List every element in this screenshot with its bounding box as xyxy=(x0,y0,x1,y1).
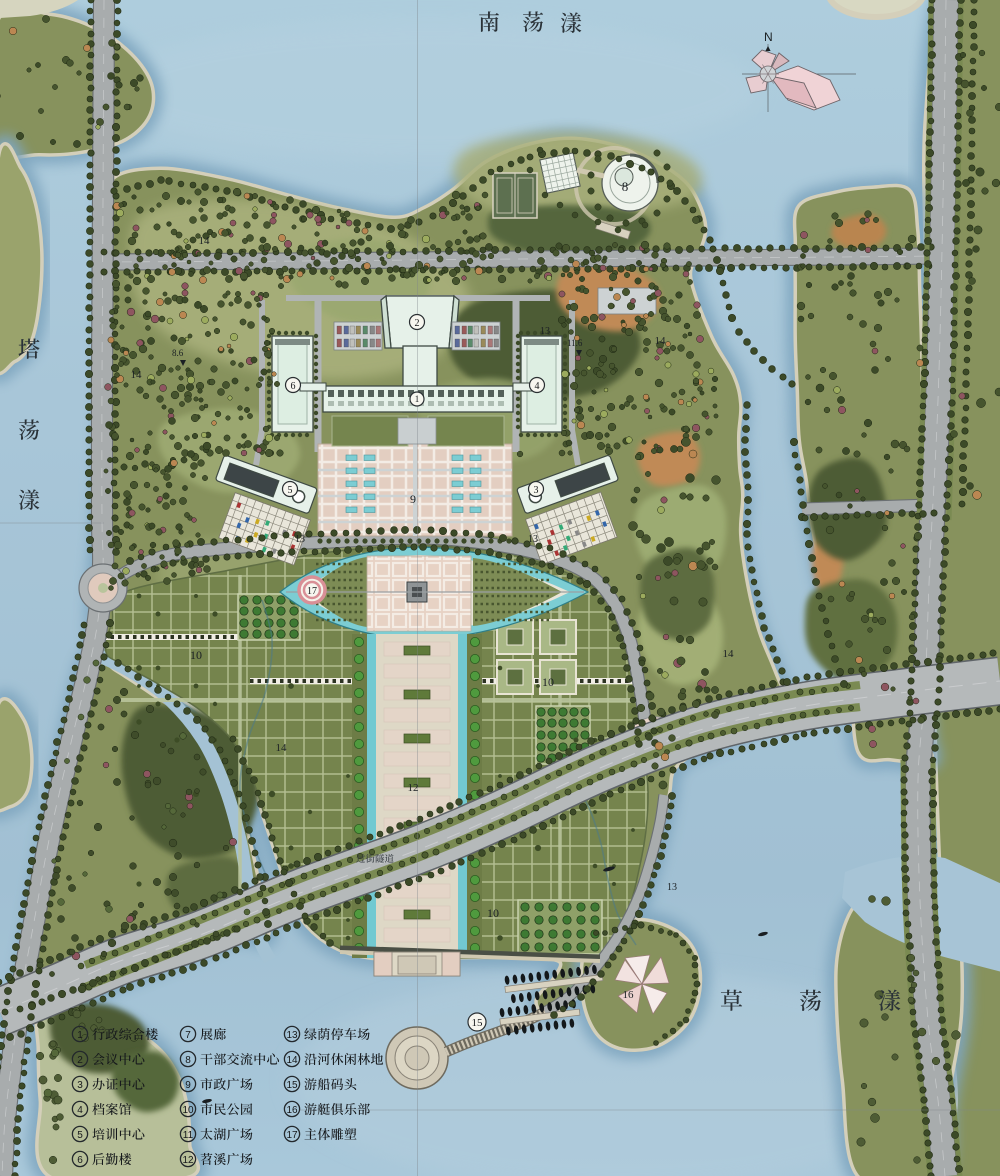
svg-text:13: 13 xyxy=(540,326,550,337)
svg-text:14: 14 xyxy=(655,335,667,347)
svg-text:1: 1 xyxy=(415,394,420,404)
svg-text:8: 8 xyxy=(185,1055,191,1066)
svg-text:9: 9 xyxy=(185,1080,191,1091)
svg-text:3: 3 xyxy=(534,485,539,496)
svg-text:2: 2 xyxy=(77,1055,83,1066)
svg-text:16: 16 xyxy=(623,989,635,1001)
svg-text:16: 16 xyxy=(286,1105,298,1116)
svg-text:13: 13 xyxy=(667,882,677,893)
svg-text:N: N xyxy=(764,30,773,44)
svg-text:4: 4 xyxy=(77,1105,83,1116)
svg-text:2: 2 xyxy=(415,318,420,329)
svg-text:14: 14 xyxy=(723,648,735,660)
svg-text:4: 4 xyxy=(535,381,540,392)
svg-text:10: 10 xyxy=(542,675,554,689)
svg-text:14: 14 xyxy=(276,742,288,754)
svg-text:6: 6 xyxy=(77,1155,83,1166)
svg-text:5: 5 xyxy=(77,1130,83,1141)
svg-text:11.6: 11.6 xyxy=(567,338,583,348)
svg-text:6: 6 xyxy=(291,381,296,392)
svg-text:10: 10 xyxy=(487,906,499,920)
svg-text:3: 3 xyxy=(77,1080,83,1091)
svg-text:12: 12 xyxy=(182,1155,194,1166)
svg-text:1: 1 xyxy=(77,1030,83,1041)
svg-text:14: 14 xyxy=(131,369,143,381)
svg-text:10: 10 xyxy=(182,1105,194,1116)
svg-text:14: 14 xyxy=(199,235,211,247)
svg-text:17: 17 xyxy=(307,586,317,597)
svg-text:15: 15 xyxy=(472,1017,484,1029)
svg-text:7: 7 xyxy=(185,1030,191,1041)
svg-text:17: 17 xyxy=(286,1130,298,1141)
svg-text:8: 8 xyxy=(622,179,629,194)
svg-text:5: 5 xyxy=(288,485,293,496)
svg-text:13: 13 xyxy=(286,1030,298,1041)
svg-text:11: 11 xyxy=(183,1130,194,1141)
svg-text:13: 13 xyxy=(528,534,538,545)
svg-text:13: 13 xyxy=(295,534,305,545)
svg-text:9: 9 xyxy=(410,492,416,506)
svg-text:8.6: 8.6 xyxy=(172,348,184,358)
svg-text:14: 14 xyxy=(286,1055,298,1066)
svg-text:12: 12 xyxy=(408,782,419,794)
svg-text:15: 15 xyxy=(286,1080,298,1091)
svg-text:10: 10 xyxy=(190,648,202,662)
